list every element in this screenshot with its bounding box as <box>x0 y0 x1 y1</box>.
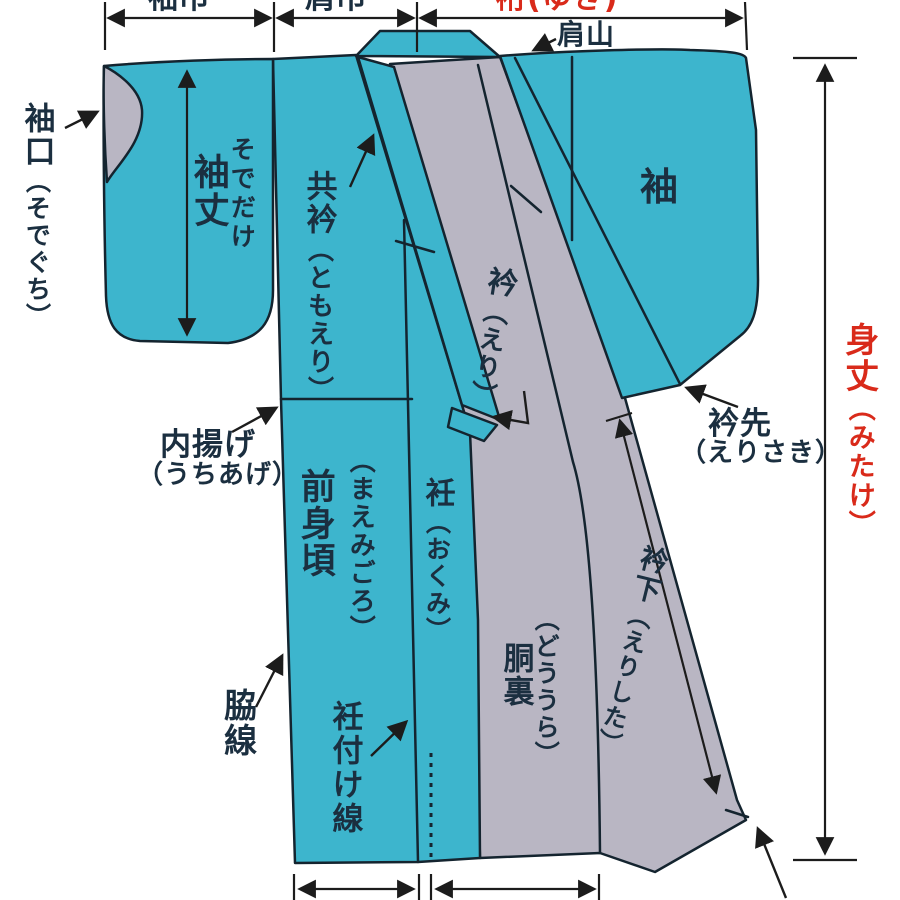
label-tomoeri: 共衿（ともえり） <box>302 170 335 404</box>
label-maemigoro: 前身頃 <box>296 468 333 579</box>
label-wakisen: 脇線 <box>220 688 255 758</box>
arrow-wakisen <box>256 656 282 707</box>
label-maemigoro-kana: （まえみごろ） <box>346 447 373 643</box>
label-kata-haba: 肩巾 <box>305 0 367 15</box>
label-uchiage-kana: （うちあげ） <box>137 462 299 489</box>
tick-4 <box>745 2 747 50</box>
label-sodetake-kana: そでだけ <box>228 136 254 252</box>
label-okumitsuke-sen: 衽付け線 <box>328 700 361 836</box>
arrow-erisaki <box>687 388 738 407</box>
label-mitake: 身丈（みたけ） <box>840 322 876 539</box>
label-sode-haba: 袖巾 <box>148 0 210 15</box>
label-sode: 袖 <box>640 168 679 208</box>
collar-cap-shape <box>356 31 500 57</box>
arrow-katayama <box>534 39 556 50</box>
label-sodetake: 袖丈 <box>189 153 227 229</box>
label-uchiage: 内揚げ <box>160 429 256 462</box>
label-yuki: 裄(ゆき) <box>496 0 618 15</box>
label-douura: 胴裏 <box>499 642 532 708</box>
arrow-hem-corner <box>758 829 786 898</box>
kimono-diagram: 袖巾 肩巾 裄(ゆき) 肩山 袖口（そでぐち） そでだけ 袖丈 共衿（ともえり）… <box>0 0 900 900</box>
label-douura-kana: （どううら） <box>532 606 558 768</box>
label-erisaki: 衿先 <box>708 408 772 441</box>
label-sodeguchi: 袖口（そでぐち） <box>20 102 53 330</box>
label-erisaki-kana: （えりさき） <box>680 440 842 467</box>
label-katayama: 肩山 <box>557 20 615 49</box>
label-okumi: 衽（おくみ） <box>421 477 453 644</box>
arrow-sodeguchi <box>65 112 97 128</box>
